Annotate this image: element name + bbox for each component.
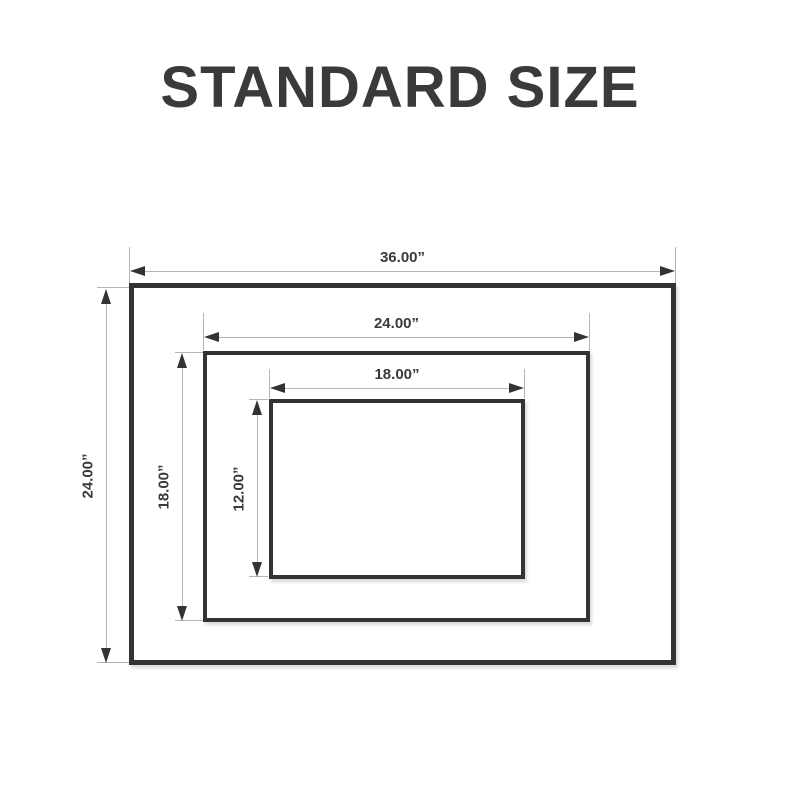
extension-line: [97, 287, 129, 288]
arrow-left-icon: [204, 332, 219, 342]
dimension-label: 12.00”: [231, 466, 248, 511]
arrow-left-icon: [270, 383, 285, 393]
dimension-label: 24.00”: [80, 453, 97, 498]
dimension-line: [106, 292, 107, 660]
dimension-label: 24.00”: [204, 315, 589, 332]
diagram-canvas: STANDARD SIZE 36.00” 24.00” 24.00”: [0, 0, 800, 800]
arrow-right-icon: [660, 266, 675, 276]
dimension-label: 18.00”: [156, 464, 173, 509]
extension-line: [524, 369, 525, 398]
dimension-line: [133, 271, 672, 272]
dimension-line: [273, 388, 521, 389]
inner-rectangle: [269, 399, 525, 579]
arrow-up-icon: [252, 400, 262, 415]
page-title: STANDARD SIZE: [0, 54, 800, 121]
arrow-left-icon: [130, 266, 145, 276]
dimension-line: [207, 337, 586, 338]
extension-line: [675, 247, 676, 283]
dimension-line: [182, 356, 183, 618]
arrow-up-icon: [177, 353, 187, 368]
arrow-right-icon: [574, 332, 589, 342]
arrow-down-icon: [252, 562, 262, 577]
extension-line: [589, 313, 590, 350]
dimension-line: [257, 403, 258, 574]
arrow-up-icon: [101, 289, 111, 304]
arrow-right-icon: [509, 383, 524, 393]
dimension-label: 36.00”: [130, 249, 675, 266]
arrow-down-icon: [101, 648, 111, 663]
dimension-label: 18.00”: [270, 366, 524, 383]
arrow-down-icon: [177, 606, 187, 621]
